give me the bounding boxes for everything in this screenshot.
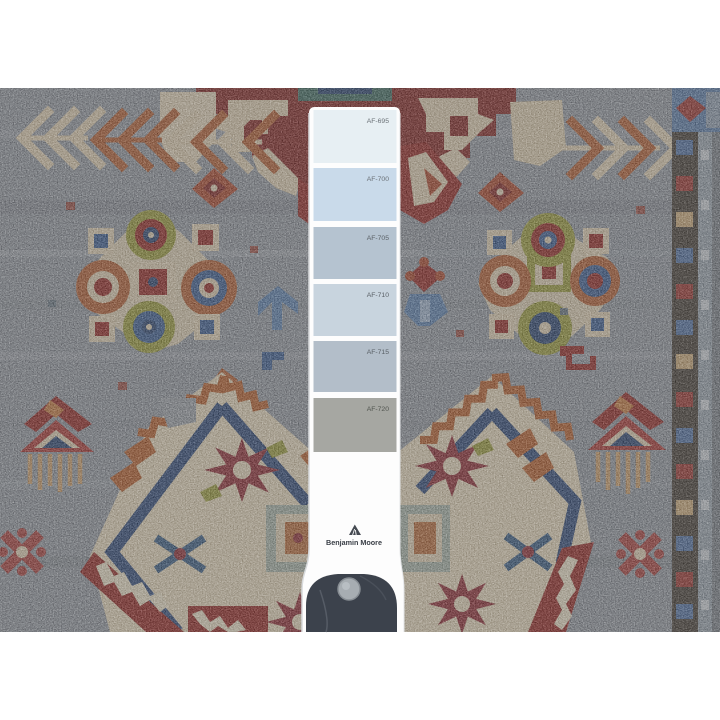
svg-text:AF-720: AF-720 xyxy=(367,406,390,413)
svg-text:AF-705: AF-705 xyxy=(367,235,390,242)
svg-text:AF-715: AF-715 xyxy=(367,349,390,356)
svg-text:AF-710: AF-710 xyxy=(367,292,390,299)
svg-text:AF-700: AF-700 xyxy=(367,176,390,183)
svg-text:AF-695: AF-695 xyxy=(367,118,390,125)
svg-text:Benjamin Moore: Benjamin Moore xyxy=(326,538,382,547)
